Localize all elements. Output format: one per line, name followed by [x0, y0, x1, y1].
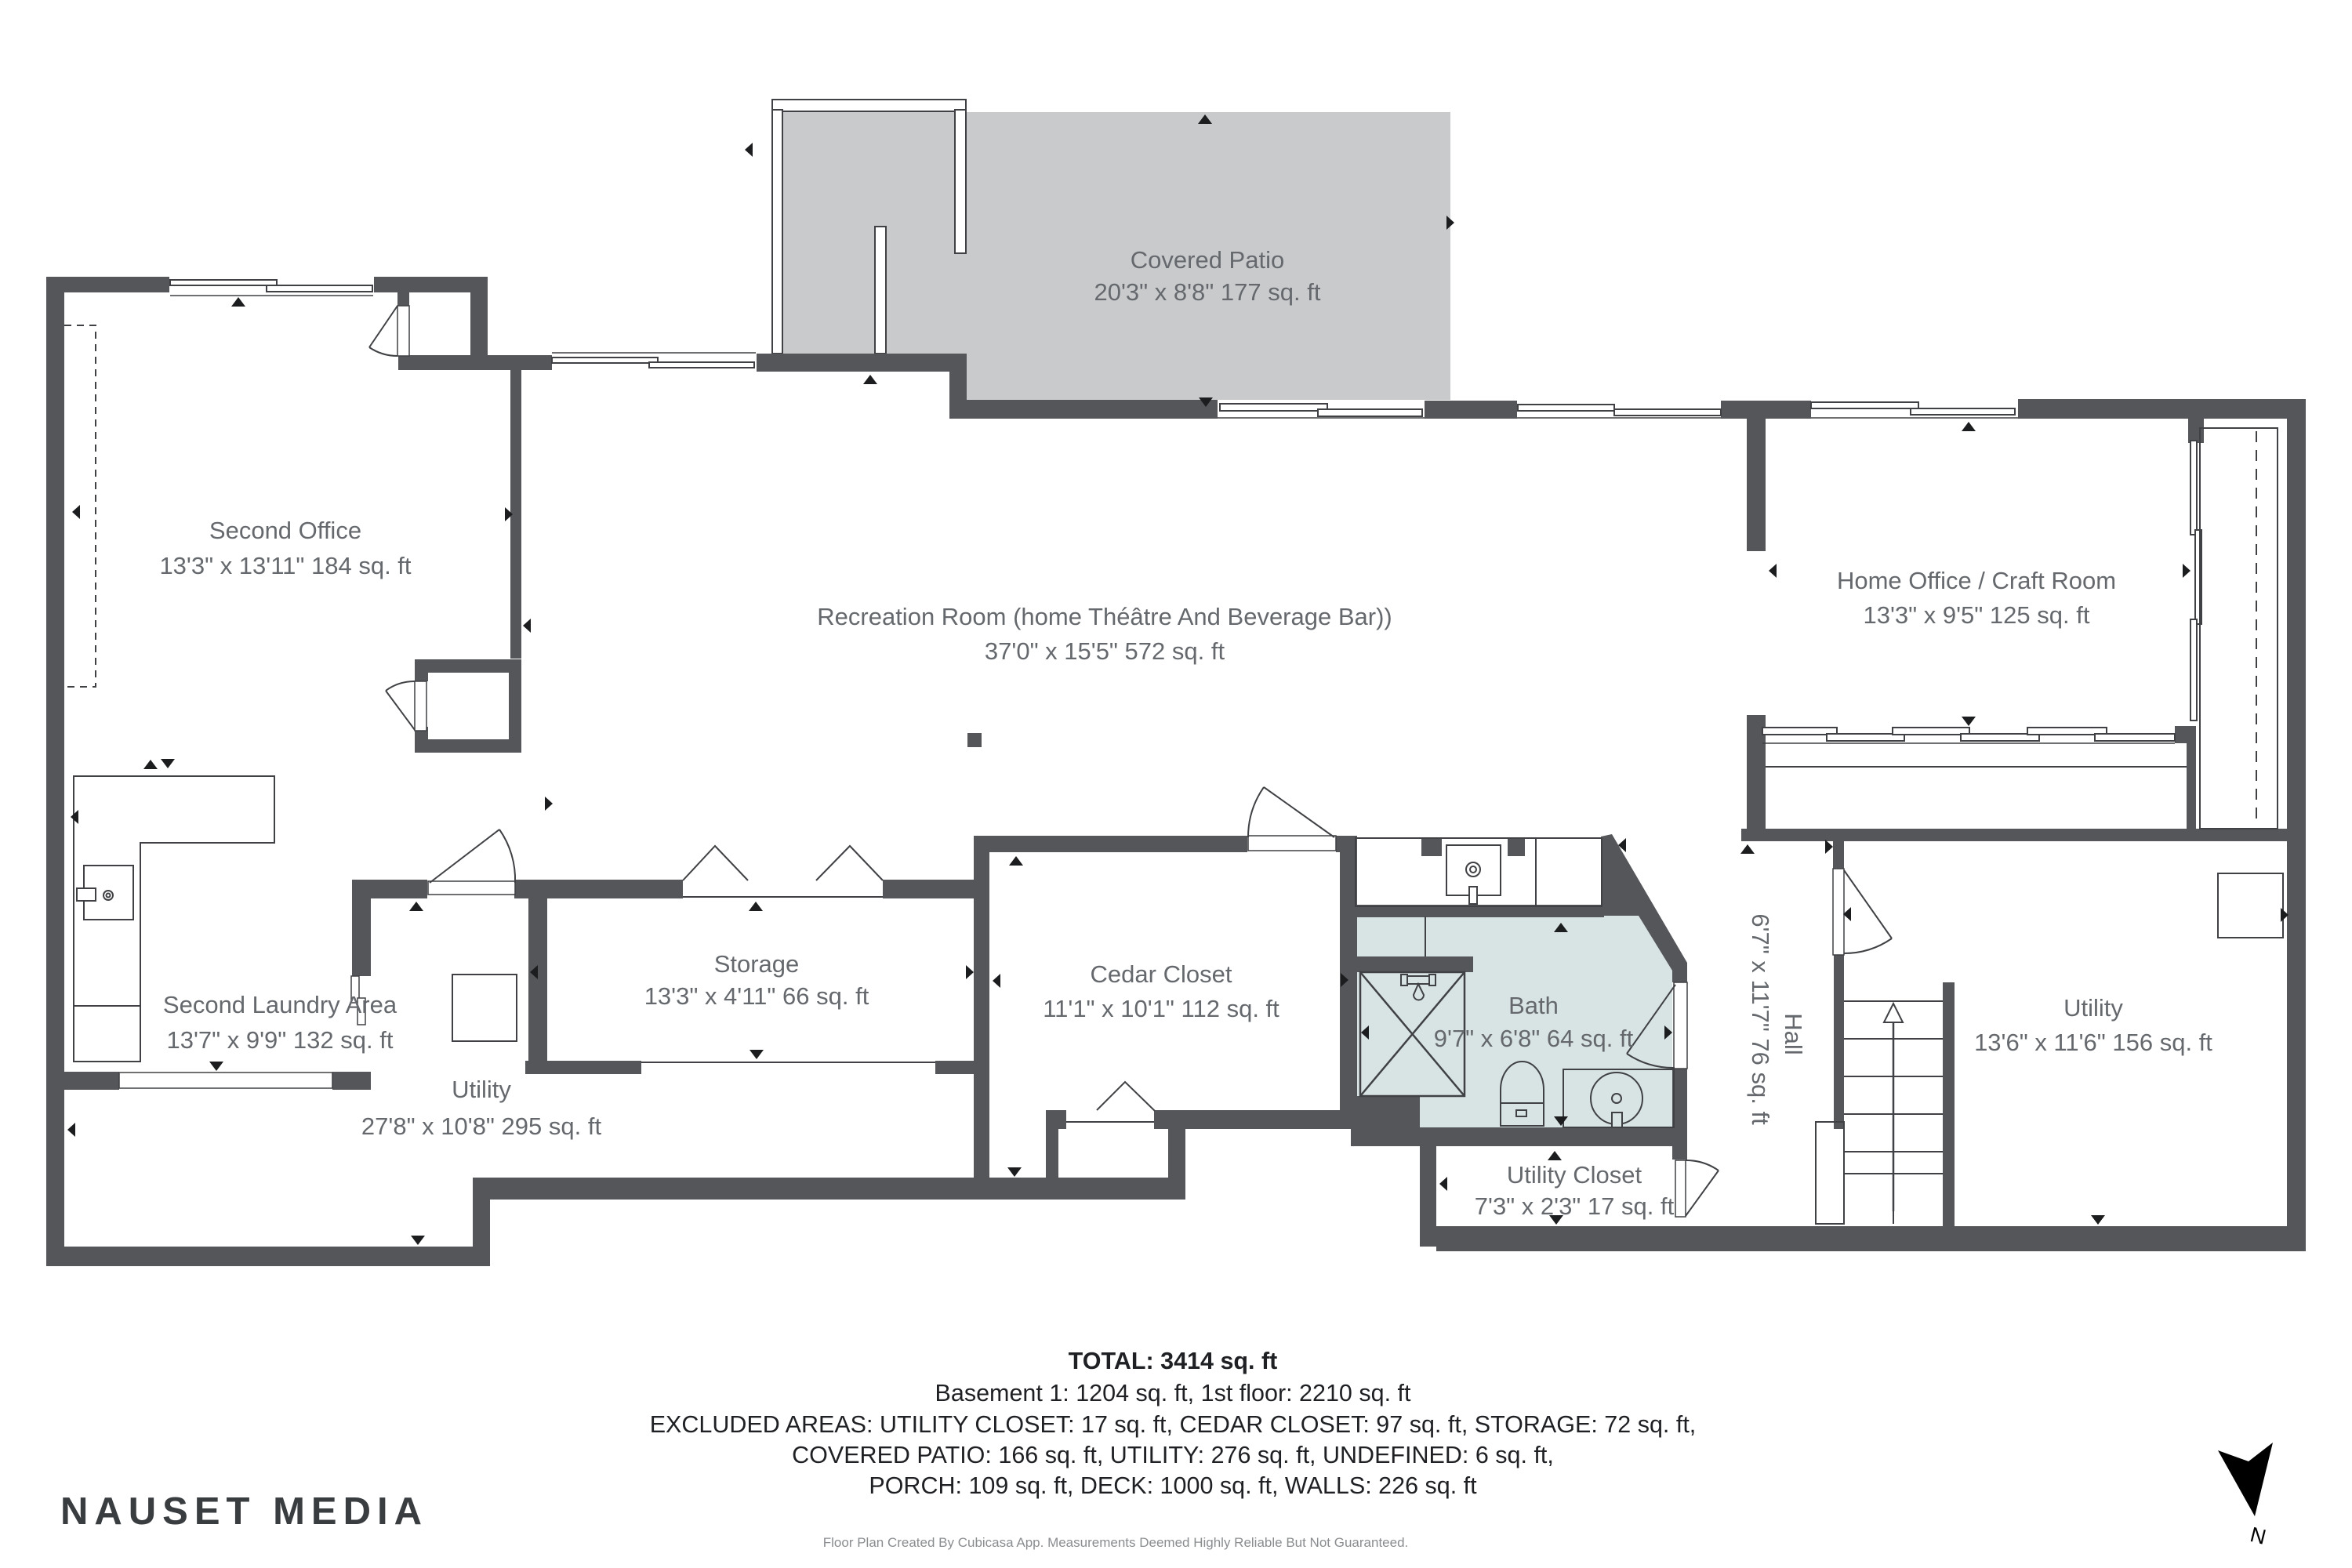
svg-text:Cedar Closet: Cedar Closet [1091, 960, 1232, 988]
svg-text:13'3" x 13'11" 184 sq. ft: 13'3" x 13'11" 184 sq. ft [159, 552, 411, 579]
svg-text:27'8" x 10'8" 295 sq. ft: 27'8" x 10'8" 295 sq. ft [361, 1112, 602, 1140]
svg-text:Utility: Utility [2063, 994, 2123, 1022]
svg-text:Floor Plan Created By Cubicasa: Floor Plan Created By Cubicasa App. Meas… [823, 1535, 1409, 1550]
svg-text:6'7" x 11'7" 76 sq. ft: 6'7" x 11'7" 76 sq. ft [1747, 913, 1774, 1125]
svg-text:Utility: Utility [452, 1076, 511, 1103]
svg-text:Basement 1: 1204 sq. ft, 1st f: Basement 1: 1204 sq. ft, 1st floor: 2210… [935, 1380, 1411, 1406]
svg-text:13'3" x 9'5" 125 sq. ft: 13'3" x 9'5" 125 sq. ft [1864, 601, 2090, 629]
svg-text:Utility Closet: Utility Closet [1507, 1161, 1642, 1189]
svg-text:13'7" x 9'9" 132 sq. ft: 13'7" x 9'9" 132 sq. ft [167, 1026, 394, 1054]
svg-text:NAUSET MEDIA: NAUSET MEDIA [60, 1490, 428, 1533]
svg-text:37'0" x 15'5" 572 sq. ft: 37'0" x 15'5" 572 sq. ft [985, 637, 1225, 665]
svg-text:7'3" x 2'3" 17 sq. ft: 7'3" x 2'3" 17 sq. ft [1475, 1192, 1675, 1220]
svg-text:13'3" x 4'11" 66 sq. ft: 13'3" x 4'11" 66 sq. ft [644, 982, 869, 1010]
svg-text:COVERED PATIO: 166 sq. ft, UTI: COVERED PATIO: 166 sq. ft, UTILITY: 276 … [792, 1442, 1554, 1468]
svg-text:Bath: Bath [1508, 992, 1559, 1019]
svg-text:TOTAL: 3414 sq. ft: TOTAL: 3414 sq. ft [1069, 1348, 1278, 1374]
svg-text:Hall: Hall [1780, 1013, 1807, 1054]
svg-text:Home Office / Craft Room: Home Office / Craft Room [1837, 567, 2116, 594]
svg-text:Storage: Storage [714, 950, 800, 978]
svg-text:Recreation Room (home Théâtre: Recreation Room (home Théâtre And Bevera… [817, 603, 1392, 630]
svg-text:Second Office: Second Office [209, 517, 361, 544]
svg-text:EXCLUDED AREAS: UTILITY CLOSET: EXCLUDED AREAS: UTILITY CLOSET: 17 sq. f… [650, 1411, 1697, 1438]
svg-text:PORCH: 109 sq. ft, DECK: 1000: PORCH: 109 sq. ft, DECK: 1000 sq. ft, WA… [869, 1472, 1477, 1499]
svg-text:Second Laundry Area: Second Laundry Area [163, 991, 397, 1018]
svg-text:13'6" x 11'6" 156 sq. ft: 13'6" x 11'6" 156 sq. ft [1974, 1029, 2212, 1056]
svg-text:20'3" x 8'8" 177 sq. ft: 20'3" x 8'8" 177 sq. ft [1094, 278, 1321, 306]
svg-text:11'1" x 10'1" 112 sq. ft: 11'1" x 10'1" 112 sq. ft [1043, 995, 1279, 1022]
svg-text:Covered Patio: Covered Patio [1131, 246, 1284, 274]
svg-text:9'7" x 6'8" 64 sq. ft: 9'7" x 6'8" 64 sq. ft [1434, 1025, 1634, 1052]
